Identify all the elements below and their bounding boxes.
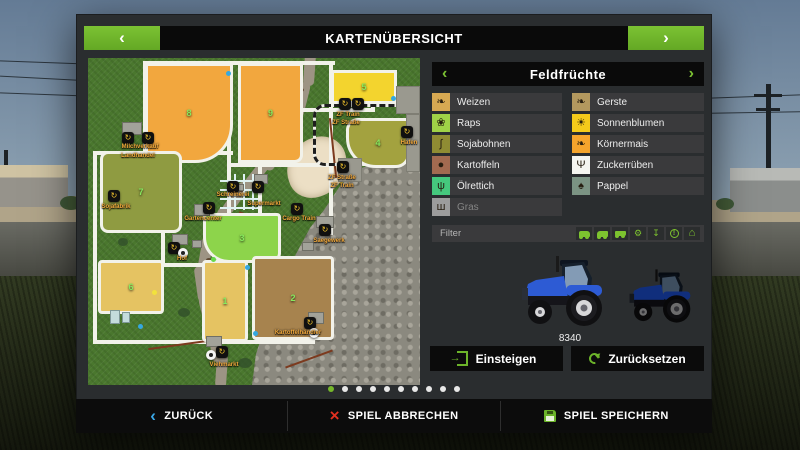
- map-hotspot-icon[interactable]: ↻: [291, 203, 303, 215]
- page-dot[interactable]: [342, 386, 348, 392]
- reset-button-label: Zurücksetzen: [608, 352, 685, 366]
- map-label: Sojafabrik: [101, 204, 130, 210]
- page-dot[interactable]: [370, 386, 376, 392]
- map-label: Kartoffelhändler: [275, 330, 321, 336]
- crop-label: Sojabohnen: [450, 135, 562, 153]
- page-dot-active[interactable]: [328, 386, 334, 392]
- field-number: 5: [361, 82, 366, 92]
- crop-label: Gerste: [590, 93, 704, 111]
- field-2[interactable]: 2: [252, 256, 334, 340]
- back-label: ZURÜCK: [164, 410, 213, 422]
- map-hotspot-icon[interactable]: ↻: [216, 346, 228, 358]
- barn-building: [110, 310, 120, 324]
- crops-column-right: ❧Gerste ☀Sonnenblumen ❧Körnermais ΨZucke…: [572, 93, 704, 198]
- enter-vehicle-button[interactable]: Einsteigen: [430, 346, 563, 371]
- corn-icon: ❧: [572, 135, 590, 153]
- canola-icon: ❀: [432, 114, 450, 132]
- town-street: [220, 207, 258, 209]
- map-hotspot-icon[interactable]: ↻: [252, 181, 264, 193]
- dock-area: [396, 86, 420, 114]
- sunflower-icon: ☀: [572, 114, 590, 132]
- map-label: Cargo Train: [282, 216, 315, 222]
- map-hotspot-icon[interactable]: ↻: [108, 190, 120, 202]
- crop-label: Weizen: [450, 93, 562, 111]
- filter-label: Filter: [440, 228, 574, 239]
- page-dot[interactable]: [426, 386, 432, 392]
- vehicle-id-label: 8340: [520, 333, 620, 344]
- crops-panel-header: ‹ Feldfrüchte ›: [432, 62, 704, 86]
- grass-icon: ш: [432, 198, 450, 216]
- map-hotspot-icon[interactable]: [206, 350, 216, 360]
- field-number: 8: [186, 108, 191, 118]
- map-label: Viehmarkt: [210, 362, 239, 368]
- filter-production-icon[interactable]: ⚙: [630, 227, 646, 240]
- map-label: ZF Straße: [332, 120, 360, 126]
- map-view[interactable]: 8 9 5 4 7 3 6 1 2 ↻ ↻ ↻ ↻ ↻ ↻ ↻ ↻ ↻ ↻ ↻ …: [88, 58, 420, 385]
- field-1[interactable]: 1: [202, 260, 248, 342]
- save-label: SPIEL SPEICHERN: [564, 410, 669, 422]
- back-button[interactable]: ‹ ZURÜCK: [76, 399, 287, 433]
- filter-info-icon[interactable]: !: [666, 227, 682, 240]
- tree: [178, 308, 190, 317]
- enter-icon: [457, 351, 468, 366]
- crop-row-zuckerrueben[interactable]: ΨZuckerrüben: [572, 156, 704, 174]
- page-dot[interactable]: [356, 386, 362, 392]
- info-icon: !: [670, 229, 679, 238]
- page-dot[interactable]: [384, 386, 390, 392]
- map-hotspot-icon[interactable]: ↻: [337, 161, 349, 173]
- crop-row-sojabohnen[interactable]: ∫Sojabohnen: [432, 135, 562, 153]
- water-point-dot: [253, 331, 258, 336]
- shed: [730, 168, 800, 212]
- tractor-icon: [579, 231, 590, 237]
- page-title: KARTENÜBERSICHT: [84, 26, 704, 50]
- map-label: Milchverkauf: [122, 144, 159, 150]
- power-pole-crossbar: [756, 108, 780, 111]
- reset-icon: [587, 351, 602, 366]
- map-label: Landhandel: [121, 153, 155, 159]
- page-dot[interactable]: [412, 386, 418, 392]
- crop-label: Zuckerrüben: [590, 156, 704, 174]
- field-number: 4: [375, 138, 380, 148]
- power-pole-crossbar: [754, 94, 782, 97]
- crop-row-gras[interactable]: шGras: [432, 198, 562, 216]
- filter-harvester-icon[interactable]: [594, 227, 610, 240]
- map-label: Supermarkt: [247, 201, 280, 207]
- tree: [118, 238, 128, 246]
- map-label: Saegewerk: [313, 238, 344, 244]
- filter-sellpoint-icon[interactable]: ↧: [648, 227, 664, 240]
- page-dot[interactable]: [454, 386, 460, 392]
- selected-vehicle-image[interactable]: [520, 252, 620, 330]
- cancel-game-button[interactable]: × SPIEL ABBRECHEN: [288, 399, 499, 433]
- trailer-icon: [615, 231, 626, 236]
- filter-trailer-icon[interactable]: [612, 227, 628, 240]
- save-floppy-icon: [544, 410, 556, 422]
- potato-icon: ●: [432, 156, 450, 174]
- save-game-button[interactable]: SPIEL SPEICHERN: [501, 399, 712, 433]
- field-number: 7: [138, 187, 143, 197]
- filter-tractor-icon[interactable]: [576, 227, 592, 240]
- barn-building: [122, 312, 130, 323]
- crop-label: Kartoffeln: [450, 156, 562, 174]
- crop-label: Raps: [450, 114, 562, 132]
- map-label: Hafen: [401, 140, 418, 146]
- reset-vehicle-button[interactable]: Zurücksetzen: [571, 346, 704, 371]
- crop-row-weizen[interactable]: ❧Weizen: [432, 93, 562, 111]
- page-indicator: [328, 386, 460, 392]
- barn: [0, 165, 68, 207]
- soybean-icon: ∫: [432, 135, 450, 153]
- marker-dot: [152, 290, 157, 295]
- map-hotspot-icon[interactable]: ↻: [203, 202, 215, 214]
- crop-label: Pappel: [590, 177, 704, 195]
- field-number: 3: [239, 233, 244, 243]
- field-number: 9: [268, 108, 273, 118]
- map-label: Gartencenter: [184, 216, 221, 222]
- enter-button-label: Einsteigen: [476, 352, 537, 366]
- wheat-icon: ❧: [432, 93, 450, 111]
- map-label: Schreinerei: [217, 192, 250, 198]
- footer-nav: ‹ ZURÜCK × SPIEL ABBRECHEN SPIEL SPEICHE…: [76, 399, 712, 433]
- crop-row-pappel[interactable]: ♠Pappel: [572, 177, 704, 195]
- crop-label: Körnermais: [590, 135, 704, 153]
- crops-panel-title: Feldfrüchte: [530, 67, 606, 82]
- river-segment: [215, 354, 228, 385]
- crop-row-koernermais[interactable]: ❧Körnermais: [572, 135, 704, 153]
- crops-column-left: ❧Weizen ❀Raps ∫Sojabohnen ●Kartoffeln ψÖ…: [432, 93, 562, 219]
- filter-bar: Filter ⚙ ↧ ! ⌂: [432, 225, 704, 242]
- crop-label: Gras: [450, 198, 562, 216]
- page-dot[interactable]: [398, 386, 404, 392]
- cancel-label: SPIEL ABBRECHEN: [348, 410, 459, 422]
- map-label: ZF Train: [330, 183, 353, 189]
- crop-row-kartoffeln[interactable]: ●Kartoffeln: [432, 156, 562, 174]
- harvester-icon: [597, 231, 608, 237]
- map-hotspot-icon[interactable]: ↻: [401, 126, 413, 138]
- map-label: Hof: [177, 256, 187, 262]
- crop-row-oelrettich[interactable]: ψÖlrettich: [432, 177, 562, 195]
- map-hotspot-icon[interactable]: ↻: [142, 132, 154, 144]
- map-label: ZF Train: [336, 112, 359, 118]
- water-point-dot: [391, 96, 396, 101]
- map-hotspot-icon[interactable]: ↻: [352, 98, 364, 110]
- map-hotspot-icon[interactable]: ↻: [319, 224, 331, 236]
- poplar-icon: ♠: [572, 177, 590, 195]
- water-point-dot: [138, 324, 143, 329]
- barley-icon: ❧: [572, 93, 590, 111]
- map-hotspot-icon[interactable]: ↻: [122, 132, 134, 144]
- map-hotspot-icon[interactable]: ↻: [339, 98, 351, 110]
- road: [93, 151, 97, 344]
- field-number: 2: [290, 293, 295, 303]
- crop-label: Ölrettich: [450, 177, 562, 195]
- tree: [238, 358, 252, 368]
- crop-row-gerste[interactable]: ❧Gerste: [572, 93, 704, 111]
- page-dot[interactable]: [440, 386, 446, 392]
- field-number: 6: [128, 282, 133, 292]
- marker-dot: [211, 257, 216, 262]
- building: [192, 240, 202, 248]
- secondary-vehicle-image[interactable]: [628, 266, 704, 326]
- town-street: [220, 198, 258, 200]
- panel-prev-icon[interactable]: ‹: [442, 66, 447, 82]
- oilseed-radish-icon: ψ: [432, 177, 450, 195]
- water-point-dot: [245, 265, 250, 270]
- field-number: 1: [222, 296, 227, 306]
- tree: [716, 198, 734, 210]
- crop-row-raps[interactable]: ❀Raps: [432, 114, 562, 132]
- field-6[interactable]: 6: [98, 260, 164, 314]
- map-label: ZF Straße: [328, 175, 356, 181]
- field-9[interactable]: 9: [238, 63, 303, 163]
- water-point-dot: [226, 71, 231, 76]
- building: [302, 242, 314, 251]
- crop-row-sonnenblumen[interactable]: ☀Sonnenblumen: [572, 114, 704, 132]
- sugar-beet-icon: Ψ: [572, 156, 590, 174]
- panel-next-icon[interactable]: ›: [689, 66, 694, 82]
- crop-label: Sonnenblumen: [590, 114, 704, 132]
- filter-home-icon[interactable]: ⌂: [684, 227, 700, 240]
